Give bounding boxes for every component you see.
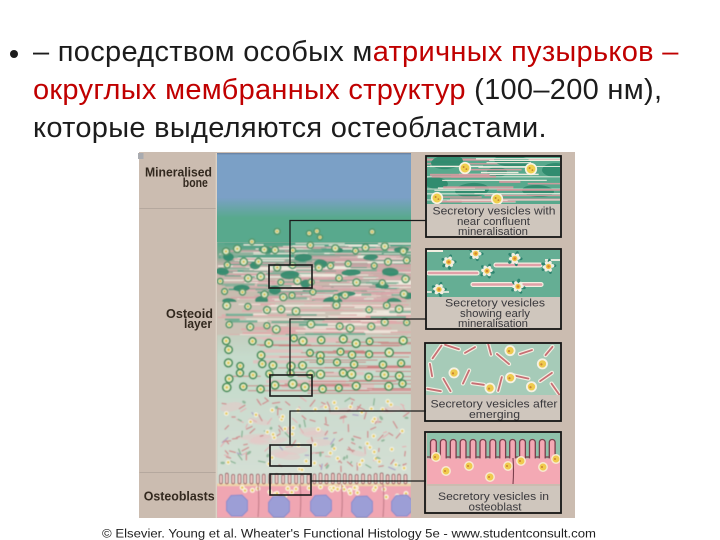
svg-text:layer: layer [184,316,212,331]
svg-text:osteoblast: osteoblast [469,502,522,514]
svg-text:emerging: emerging [469,409,520,421]
svg-text:Osteoblasts: Osteoblasts [144,489,215,504]
svg-text:© Elsevier. Young et al. Wheat: © Elsevier. Young et al. Wheater's Funct… [102,527,596,540]
svg-text:bone: bone [183,175,208,190]
